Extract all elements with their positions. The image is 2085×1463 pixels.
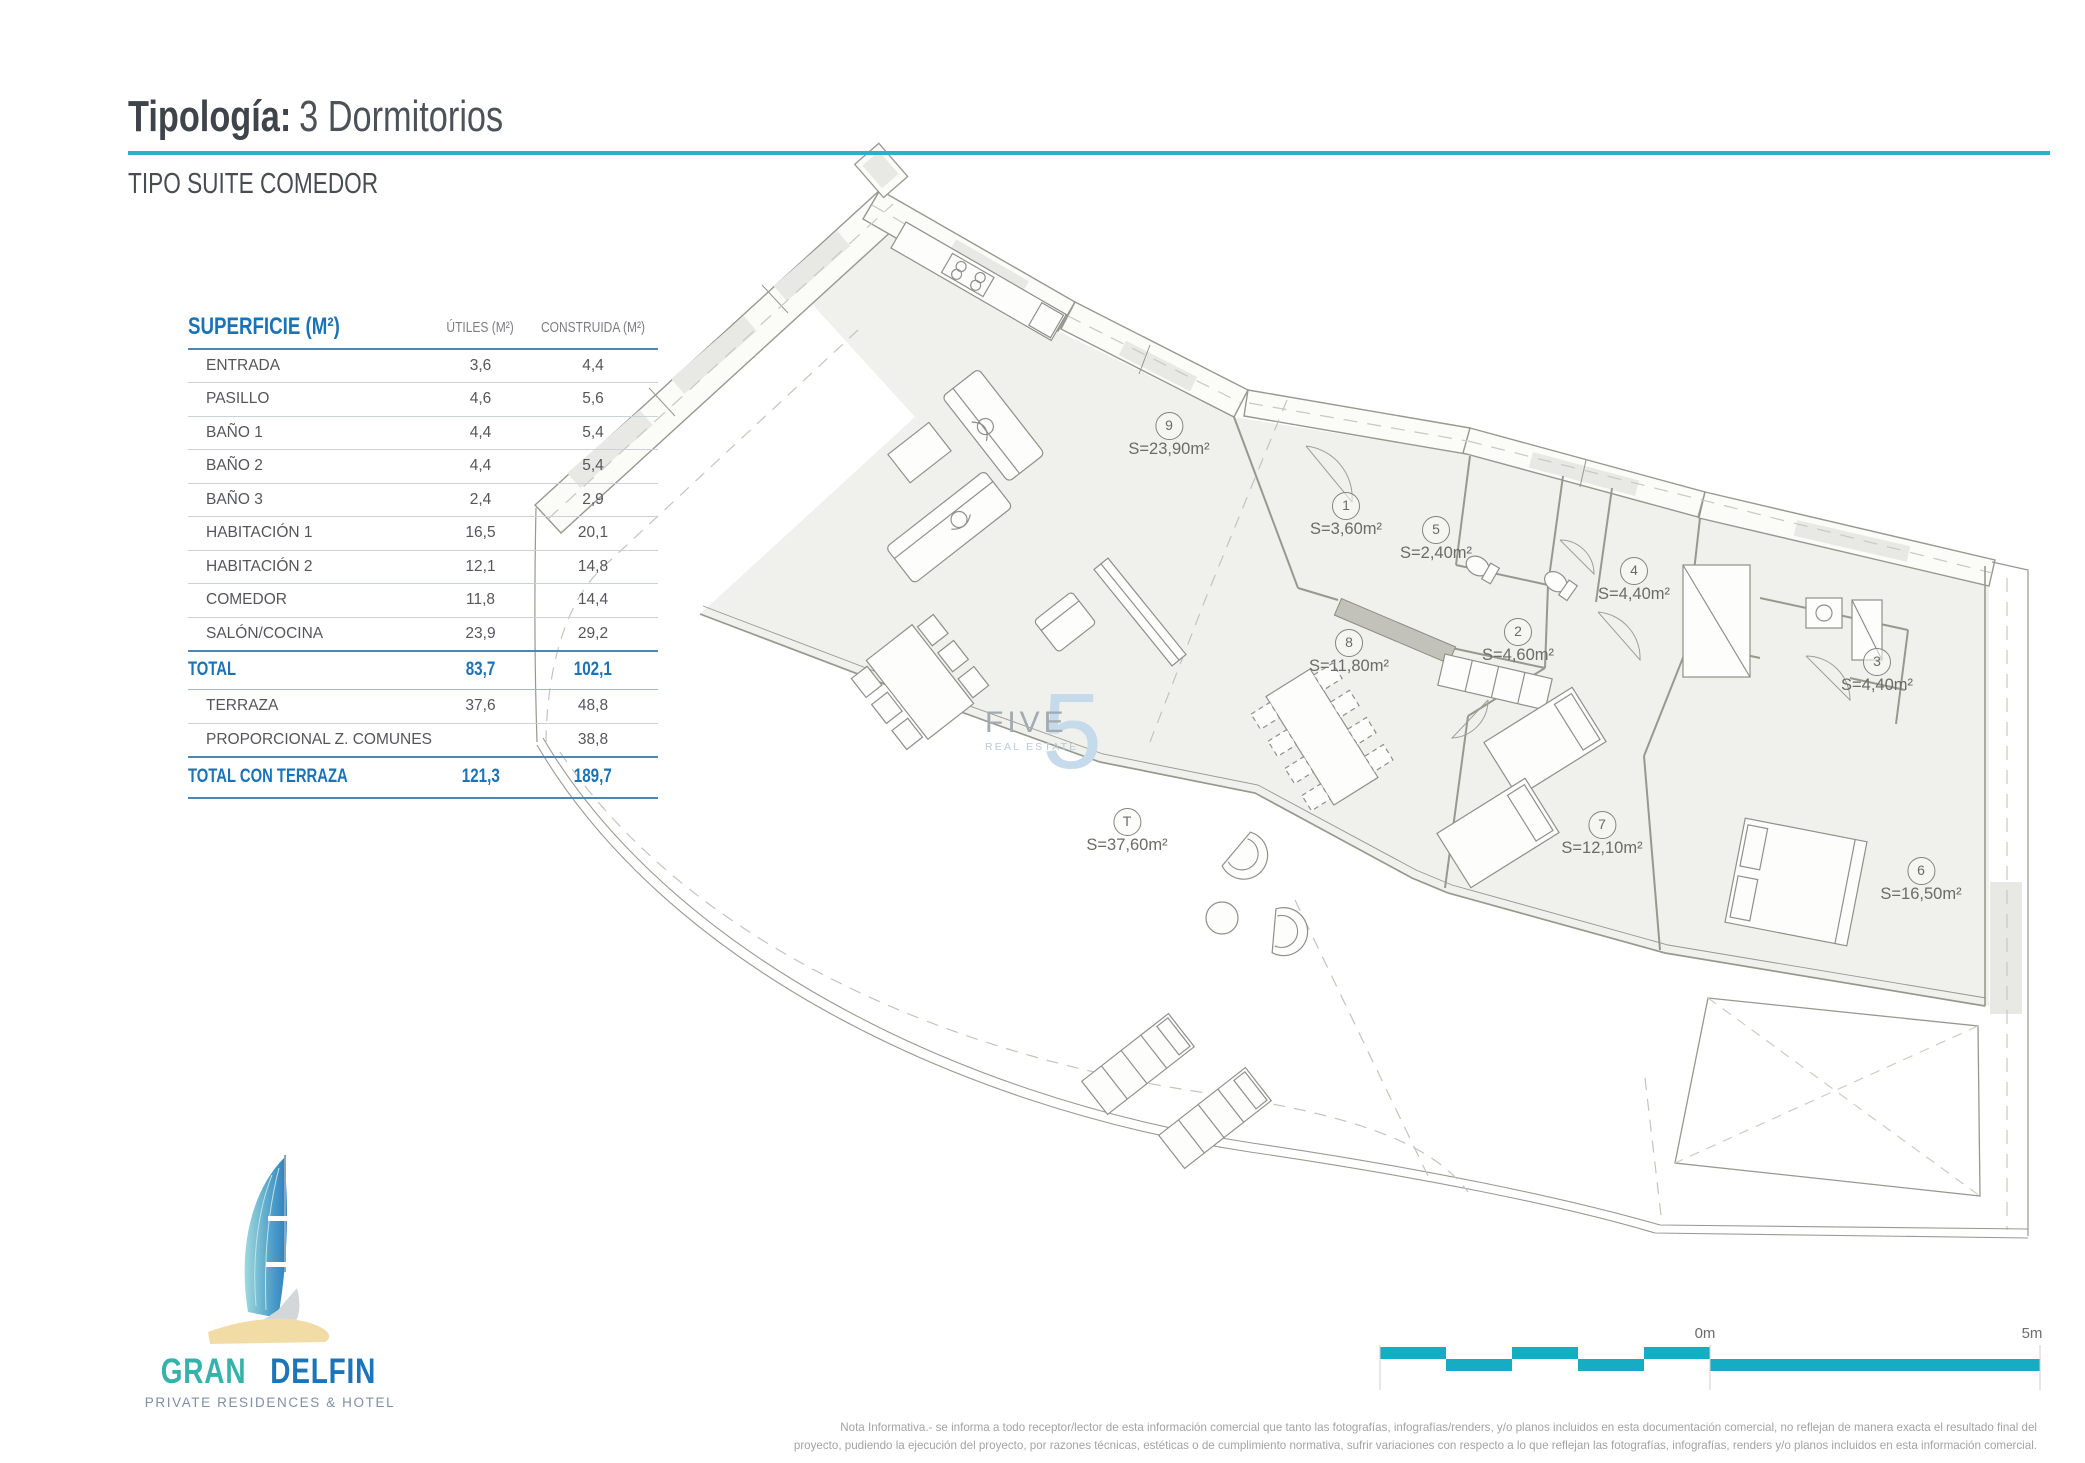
row-construida-value: 38,8 xyxy=(528,723,658,757)
disclaimer-line-2: proyecto, pudiendo la ejecución del proy… xyxy=(600,1437,2037,1455)
scale-label-5m: 5m xyxy=(2022,1325,2043,1342)
row-construida-value: 20,1 xyxy=(528,517,658,551)
row-utiles-value xyxy=(433,723,528,757)
row-label: TOTAL xyxy=(188,651,433,690)
sink xyxy=(1806,598,1842,628)
page-title: Tipología:3 Dormitorios xyxy=(128,92,609,142)
watermark-five: FIVE xyxy=(985,708,1078,738)
shower xyxy=(1852,600,1882,660)
column-header-construida: CONSTRUIDA (M²) xyxy=(528,306,658,349)
row-utiles-value: 12,1 xyxy=(433,550,528,584)
table-row: HABITACIÓN 116,520,1 xyxy=(188,517,658,551)
table-row: BAÑO 24,45,4 xyxy=(188,450,658,484)
table-row: TOTAL83,7102,1 xyxy=(188,651,658,690)
page-subtitle: TIPO SUITE COMEDOR xyxy=(128,168,449,201)
row-utiles-value: 4,6 xyxy=(433,383,528,417)
row-label: HABITACIÓN 2 xyxy=(188,550,433,584)
sun-lounger xyxy=(1082,1014,1195,1115)
row-label: COMEDOR xyxy=(188,584,433,618)
table-row: TERRAZA37,648,8 xyxy=(188,690,658,724)
terrace-chair xyxy=(1272,907,1310,958)
disclaimer-note: Nota Informativa.- se informa a todo rec… xyxy=(600,1419,2037,1454)
row-construida-value: 5,4 xyxy=(528,450,658,484)
row-construida-value: 5,6 xyxy=(528,383,658,417)
scale-bar xyxy=(1380,1345,2040,1390)
row-label: TERRAZA xyxy=(188,690,433,724)
table-row: PASILLO4,65,6 xyxy=(188,383,658,417)
row-label: HABITACIÓN 1 xyxy=(188,517,433,551)
row-utiles-value: 3,6 xyxy=(433,349,528,383)
logo: GRANDELFIN PRIVATE RESIDENCES & HOTEL xyxy=(130,1352,410,1410)
table-row: ENTRADA3,64,4 xyxy=(188,349,658,383)
row-label: BAÑO 2 xyxy=(188,450,433,484)
row-utiles-value: 11,8 xyxy=(433,584,528,618)
table-header-row: SUPERFICIE (M²) ÚTILES (M²) CONSTRUIDA (… xyxy=(188,306,658,349)
row-utiles-value: 121,3 xyxy=(433,757,528,798)
row-label: PASILLO xyxy=(188,383,433,417)
column-header-utiles: ÚTILES (M²) xyxy=(433,306,528,349)
sun-lounger xyxy=(1159,1068,1272,1169)
row-utiles-value: 4,4 xyxy=(433,450,528,484)
row-construida-value: 102,1 xyxy=(528,651,658,690)
pool-square xyxy=(1675,998,1980,1196)
terrace-table xyxy=(1206,902,1238,934)
title-label: Tipología: xyxy=(128,92,291,141)
table-row: HABITACIÓN 212,114,8 xyxy=(188,550,658,584)
title-underline xyxy=(128,151,2050,155)
row-label: ENTRADA xyxy=(188,349,433,383)
watermark: FIVE REAL ESTATE xyxy=(985,708,1078,753)
table-title: SUPERFICIE (M²) xyxy=(188,306,433,349)
row-construida-value: 48,8 xyxy=(528,690,658,724)
row-construida-value: 189,7 xyxy=(528,757,658,798)
row-construida-value: 5,4 xyxy=(528,416,658,450)
title-value: 3 Dormitorios xyxy=(299,92,503,141)
scale-label-0m: 0m xyxy=(1695,1325,1716,1342)
row-label: BAÑO 1 xyxy=(188,416,433,450)
table-row: BAÑO 14,45,4 xyxy=(188,416,658,450)
row-label: SALÓN/COCINA xyxy=(188,617,433,651)
table-row: COMEDOR11,814,4 xyxy=(188,584,658,618)
logo-sail-icon xyxy=(208,1155,329,1344)
table-row: TOTAL CON TERRAZA121,3189,7 xyxy=(188,757,658,798)
logo-delfin: DELFIN xyxy=(271,1352,377,1392)
logo-gran: GRAN xyxy=(161,1352,247,1392)
table-row: PROPORCIONAL Z. COMUNES38,8 xyxy=(188,723,658,757)
watermark-realestate: REAL ESTATE xyxy=(985,742,1078,753)
row-construida-value: 2,9 xyxy=(528,483,658,517)
page: { "header": { "title_bold": "Tipología:"… xyxy=(0,0,2085,1463)
row-label: PROPORCIONAL Z. COMUNES xyxy=(188,723,433,757)
row-utiles-value: 37,6 xyxy=(433,690,528,724)
wardrobe xyxy=(1683,565,1750,677)
terrace-chair xyxy=(1221,831,1278,889)
bed-double xyxy=(1725,818,1867,946)
row-construida-value: 14,8 xyxy=(528,550,658,584)
row-construida-value: 29,2 xyxy=(528,617,658,651)
row-label: TOTAL CON TERRAZA xyxy=(188,757,433,798)
row-utiles-value: 83,7 xyxy=(433,651,528,690)
table-row: BAÑO 32,42,9 xyxy=(188,483,658,517)
surface-table: SUPERFICIE (M²) ÚTILES (M²) CONSTRUIDA (… xyxy=(188,306,658,799)
row-construida-value: 14,4 xyxy=(528,584,658,618)
table-row: SALÓN/COCINA23,929,2 xyxy=(188,617,658,651)
row-construida-value: 4,4 xyxy=(528,349,658,383)
row-utiles-value: 16,5 xyxy=(433,517,528,551)
row-utiles-value: 4,4 xyxy=(433,416,528,450)
row-utiles-value: 23,9 xyxy=(433,617,528,651)
disclaimer-line-1: Nota Informativa.- se informa a todo rec… xyxy=(600,1419,2037,1437)
row-label: BAÑO 3 xyxy=(188,483,433,517)
row-utiles-value: 2,4 xyxy=(433,483,528,517)
surface-table-body: ENTRADA3,64,4PASILLO4,65,6BAÑO 14,45,4BA… xyxy=(188,349,658,798)
logo-subtitle: PRIVATE RESIDENCES & HOTEL xyxy=(130,1395,410,1410)
